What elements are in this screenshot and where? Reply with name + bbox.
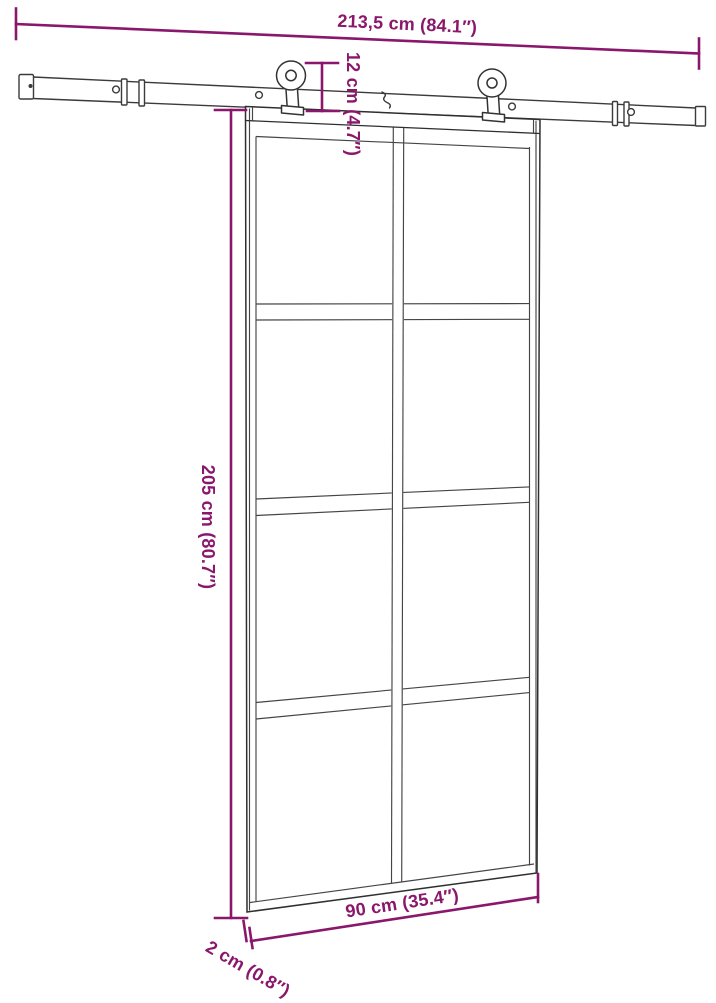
rail-hole [509,103,516,110]
rail-hole [113,86,120,93]
rail-end-cap-right [696,107,706,127]
roller-hanger-right [478,69,506,122]
label-door-thickness: 2 cm (0.8″) [202,937,293,1001]
dim-tick [250,928,253,948]
glass-door [246,107,541,913]
dimension-door-thickness [244,921,253,948]
rail-connector-right-a [613,102,618,126]
rail-connector-left-a [122,79,128,105]
dimension-door-height [215,110,247,918]
roller-hub [487,78,497,88]
label-door-height: 205 cm (80.7″) [198,465,218,590]
rail-pin-dot [29,85,32,88]
rail-hole [628,109,635,116]
roller-hub [286,70,296,80]
rail-connector-left-b [139,80,145,106]
label-rail-length: 213,5 cm (84.1″) [337,11,478,38]
hanger-foot [282,106,304,116]
hanger-foot [483,113,505,123]
rail-hole [256,92,263,99]
label-hardware-height: 12 cm (4.7″) [343,52,363,156]
dim-tick [244,921,247,941]
sliding-door-diagram: 213,5 cm (84.1″) 12 cm (4.7″) 205 cm (80… [0,0,716,1003]
diagram-canvas: 213,5 cm (84.1″) 12 cm (4.7″) 205 cm (80… [0,0,716,1003]
